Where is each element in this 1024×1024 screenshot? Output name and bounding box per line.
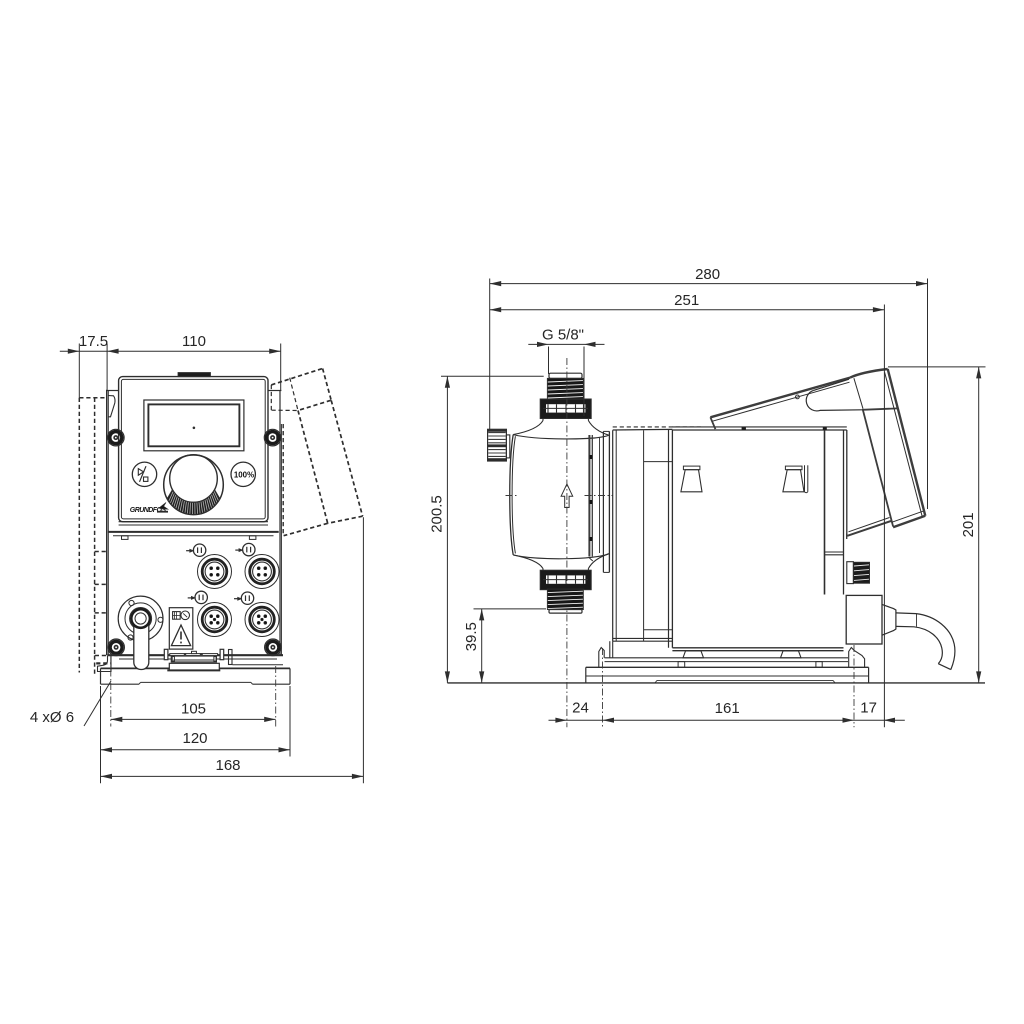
svg-text:39.5: 39.5 <box>463 622 480 651</box>
svg-text:4 xØ 6: 4 xØ 6 <box>30 709 74 726</box>
svg-text:201: 201 <box>960 512 977 537</box>
svg-text:161: 161 <box>715 700 740 717</box>
svg-text:100%: 100% <box>234 470 254 479</box>
svg-text:105: 105 <box>181 701 206 718</box>
svg-text:17: 17 <box>860 700 877 717</box>
svg-text:200.5: 200.5 <box>429 495 446 533</box>
svg-text:251: 251 <box>674 292 699 309</box>
svg-text:24: 24 <box>572 700 589 717</box>
svg-text:168: 168 <box>215 757 240 774</box>
svg-text:17.5: 17.5 <box>79 333 108 350</box>
svg-text:120: 120 <box>182 730 207 747</box>
svg-text:G 5/8": G 5/8" <box>542 327 584 344</box>
svg-text:280: 280 <box>695 266 720 283</box>
svg-text:110: 110 <box>182 333 206 350</box>
